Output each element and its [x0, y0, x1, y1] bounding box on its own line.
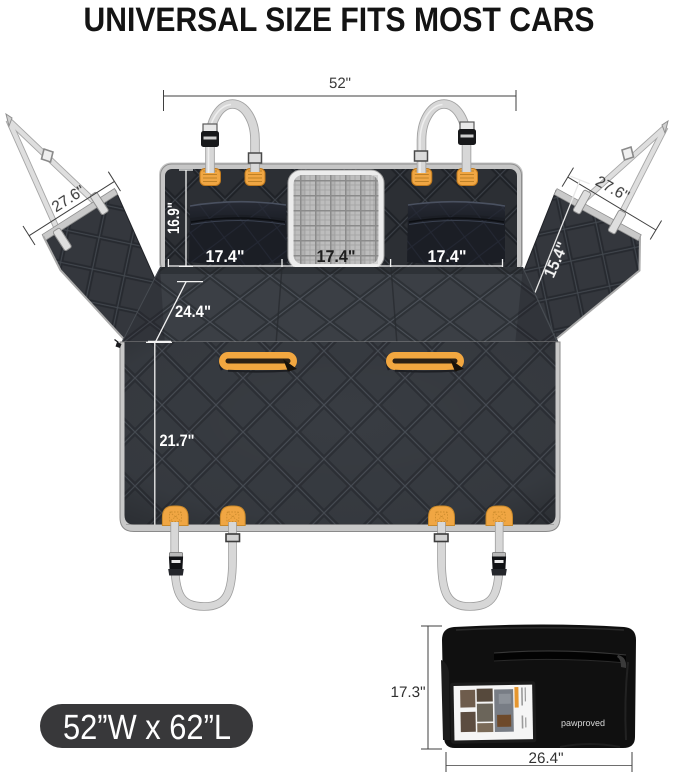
svg-text:52”W x 62”L: 52”W x 62”L	[63, 708, 231, 747]
svg-text:21.7": 21.7"	[160, 432, 195, 450]
svg-text:17.4": 17.4"	[317, 247, 356, 266]
svg-text:17.3": 17.3"	[391, 684, 426, 701]
svg-text:26.4": 26.4"	[529, 750, 564, 767]
svg-text:17.4": 17.4"	[428, 247, 467, 266]
svg-text:pawproved: pawproved	[561, 718, 605, 728]
svg-text:UNIVERSAL SIZE FITS MOST CARS: UNIVERSAL SIZE FITS MOST CARS	[84, 1, 595, 39]
svg-text:17.4": 17.4"	[206, 247, 245, 266]
svg-text:52": 52"	[329, 75, 351, 92]
svg-text:16.9": 16.9"	[165, 202, 183, 234]
svg-text:24.4": 24.4"	[175, 303, 211, 321]
